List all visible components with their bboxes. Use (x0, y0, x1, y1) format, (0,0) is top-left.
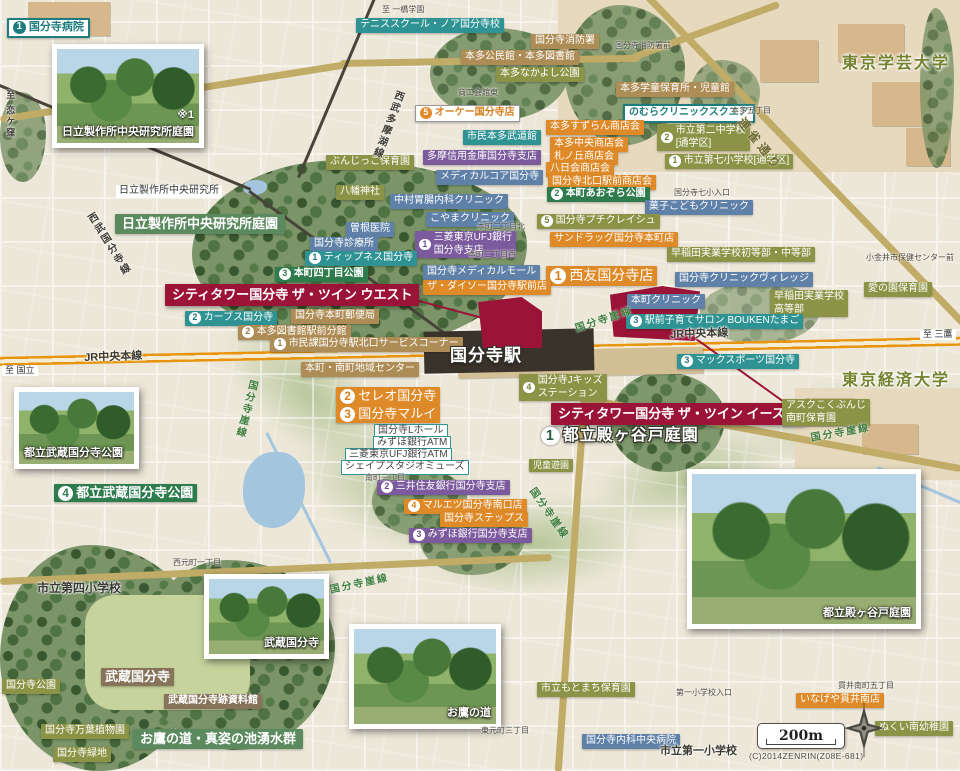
label-text: 武蔵国分寺 (105, 669, 170, 685)
map-label-shop: 本多すずらん商店会 (546, 120, 644, 135)
map-label-wplain: 至 国立 (2, 365, 38, 376)
map-label-plain: 市立第四小学校 (37, 581, 121, 596)
label-text: 国分寺緑地 (57, 748, 107, 761)
label-text: 市立もとまち保育園 (541, 683, 631, 696)
map-label-teal: 2カーブス国分寺 (185, 311, 277, 326)
map-label-note: 至 一橋学園 (382, 5, 424, 15)
map-label-olive: 本多なかよし公園 (496, 67, 584, 82)
label-text: 多摩信用金庫国分寺支店 (427, 151, 537, 164)
label-text: 国分寺ステップス (444, 513, 524, 526)
label-text: 本町・南町地域センター (305, 363, 415, 376)
label-text: 東京経済大学 (842, 371, 950, 391)
map-label-olive: 愛の園保育園 (864, 282, 932, 297)
label-text: 市民課国分寺駅北口サービスコーナー (289, 338, 459, 351)
map-label-clinic: メディカルコア国分寺 (436, 170, 543, 185)
label-text: オーケー国分寺店 (435, 107, 515, 120)
label-text: 武蔵国分寺跡資料館 (168, 695, 258, 708)
map-label-pub: 1市民課国分寺駅北口サービスコーナー (270, 337, 463, 352)
label-text: ティップネス国分寺 (324, 252, 413, 265)
label-text: 本町四丁目公園 (294, 268, 364, 281)
label-text: マックスポーツ国分寺 (696, 355, 796, 368)
photo-caption: 武蔵国分寺 (264, 634, 319, 650)
label-text: 八幡神社 (340, 186, 380, 199)
label-text: みずほ銀行国分寺支店 (428, 529, 528, 542)
label-text: 至 国立 (5, 365, 35, 376)
label-text: 菓子こどもクリニック (649, 201, 749, 214)
label-text: 曽根医院 (350, 223, 390, 236)
campus-building (760, 40, 818, 82)
label-text: 都立武蔵国分寺公園 (76, 485, 193, 501)
label-text: 国分寺公園 (6, 680, 56, 693)
map-label-note: 本町二丁目北 (477, 222, 525, 232)
label-text: 至 恋ケ窪 (4, 90, 15, 139)
map-label-crimson: シティタワー国分寺 ザ・ツイン イースト (551, 403, 805, 425)
map-label-plain: JR中央本線 (670, 327, 729, 343)
label-text: 国分寺メディカルモール (427, 266, 536, 279)
map-label-note: 東元町三丁目 (481, 726, 529, 736)
photo-image (692, 474, 916, 624)
map-label-pub: 国分寺本町郵便局 (291, 309, 379, 324)
map-label-note: 西元町一丁目 (173, 558, 221, 568)
photo-caption: 都立武蔵国分寺公園 (24, 444, 123, 460)
map-label-bank: 多摩信用金庫国分寺支店 (423, 150, 541, 165)
map-label-pub: 本多学童保育所・児童館 (616, 82, 734, 97)
property-block-west (478, 297, 542, 348)
compass-rose (844, 702, 884, 758)
label-text: 本多公民館・本多図書館 (465, 51, 575, 64)
map-label-olive: 八幡神社 (336, 185, 384, 200)
map-label-wplain: 至 三鷹 (920, 329, 956, 340)
map-label-teal: 3マックスポーツ国分寺 (677, 354, 799, 369)
badge-number-icon: 2 (381, 481, 393, 493)
map-label-olive: 早稲田実業学校初等部・中等部 (667, 247, 815, 262)
label-text: 東京学芸大学 (842, 54, 950, 74)
map-label-shop: 1西友国分寺店 (546, 266, 657, 286)
label-text: 国分寺本町郵便局 (295, 310, 375, 323)
photo-card: お鷹の道 (349, 624, 501, 729)
label-text: 八日会商店会 (550, 163, 610, 176)
label-text: 中村胃腸内科クリニック (394, 195, 504, 208)
photo-caption: 日立製作所中央研究所庭園 (62, 123, 194, 139)
badge-number-icon: 1 (669, 155, 681, 167)
badge-number-icon: 2 (189, 312, 201, 324)
photo-card: 都立殿ヶ谷戸庭園 (687, 469, 921, 629)
badge-number-icon: 4 (523, 382, 535, 394)
map-label-univ: 東京学芸大学 (842, 54, 950, 74)
photo-note: ※1 (177, 108, 194, 121)
label-text: アスクこくぶんじ 南町保育園 (786, 400, 866, 425)
photo-card: 都立武蔵国分寺公園 (14, 387, 139, 469)
label-text: メディカルコア国分寺 (440, 171, 539, 184)
map-label-olive: ぬくい南幼稚園 (875, 721, 953, 736)
label-text: 三井住友銀行国分寺支店 (396, 481, 506, 494)
label-text: 本多すずらん商店会 (550, 121, 640, 134)
map-label-green: 3本町四丁目公園 (275, 267, 368, 282)
map-label-clinic: 本町クリニック (627, 294, 705, 309)
label-text: 至 三鷹 (923, 329, 953, 340)
badge-number-icon: 5 (541, 215, 553, 227)
label-text: 本多中央商店会 (554, 138, 624, 151)
map-label-olive: 5国分寺プチクレイシュ (537, 214, 660, 229)
label-text: カーブス国分寺 (204, 312, 273, 325)
badge-number-icon: 2 (340, 389, 355, 404)
label-text: ぶんじっこ保育園 (330, 156, 410, 169)
label-text: テニススクール・ノア国分寺校 (360, 19, 500, 32)
map-label-olive: 国分寺公園 (2, 679, 60, 694)
map-label-green: 4都立武蔵国分寺公園 (54, 484, 197, 502)
map-label-parkbig: 日立製作所中央研究所庭園 (115, 214, 285, 234)
label-text: 小金井市保健センター前 (866, 253, 954, 263)
map-label-note: 本多五丁目 (731, 106, 771, 116)
photo-caption: 都立殿ヶ谷戸庭園 (823, 604, 911, 620)
map-label-univ: 東京経済大学 (842, 371, 950, 391)
label-text: 至 一橋学園 (382, 5, 424, 15)
label-text: 愛の園保育園 (868, 283, 928, 296)
badge-number-icon: 1 (309, 252, 321, 264)
badge-number-icon: 1 (550, 268, 566, 284)
map-label-plain: JR中央本線 (84, 350, 143, 366)
map-label-worange: 5オーケー国分寺店 (415, 105, 520, 122)
badge-number-icon: 3 (279, 268, 291, 280)
map-label-shop: サンドラッグ国分寺本町店 (550, 232, 678, 247)
label-text: 国分寺マルイ (358, 406, 436, 422)
label-text: 国分寺病院 (29, 21, 84, 35)
photo-card: 武蔵国分寺 (204, 574, 329, 659)
label-text: 国分寺診療所 (314, 238, 374, 251)
map-label-parkbig: お鷹の道・真姿の池湧水群 (133, 729, 303, 749)
label-text: シェイプスタジオミューズ (345, 461, 465, 474)
badge-number-icon: 2 (661, 132, 673, 144)
label-text: 本町二丁目北 (477, 222, 525, 232)
label-text: 日立製作所中央研究所 (119, 185, 219, 198)
map-label-clinic: 中村胃腸内科クリニック (390, 194, 508, 209)
map-label-green: 2本町あおぞら公園 (547, 187, 650, 202)
label-text: 本町クリニック (631, 295, 701, 308)
badge-number-icon: 1 (13, 21, 26, 34)
label-text: 国分寺駅 (450, 345, 522, 366)
map-label-outline: 1都立殿ヶ谷戸庭園 (541, 426, 699, 446)
map-label-shop: 3国分寺マルイ (336, 405, 440, 423)
map-label-shop: ザ・ダイソー国分寺駅前店 (423, 280, 551, 295)
label-text: 国分寺プチクレイシュ (556, 215, 656, 228)
map-label-olive: 児童遊園 (529, 459, 573, 472)
map-label-clinic: 国分寺メディカルモール (423, 265, 540, 280)
map-label-shop: 国分寺ステップス (440, 512, 528, 527)
map-label-pub: 本町・南町地域センター (301, 362, 419, 377)
label-text: JR中央本線 (84, 350, 143, 366)
map-label-clinic: 国分寺診療所 (310, 237, 378, 252)
map-label-pub: 本多公民館・本多図書館 (461, 50, 579, 65)
label-text: 国分寺七小入口 (674, 188, 730, 198)
label-text: 児童遊園 (533, 460, 569, 471)
map-label-note: 小金井市保健センター前 (866, 253, 954, 263)
map-label-olive: ぶんじっこ保育園 (326, 155, 414, 170)
map-label-note: 本町二丁目西 (468, 250, 516, 260)
label-text: 早稲田実業学校初等部・中等部 (671, 248, 811, 261)
map-label-olive: 国分寺緑地 (53, 747, 111, 762)
label-text: マルエツ国分寺南口店 (423, 500, 523, 513)
label-text: 国分寺消防署 (535, 35, 595, 48)
label-text: 日立製作所中央研究所庭園 (122, 216, 278, 232)
map-label-olive: 4国分寺Jキッズ ステーション (519, 374, 607, 401)
badge-number-icon: 5 (420, 107, 432, 119)
badge-number-icon: 2 (551, 188, 563, 200)
label-text: 東元町三丁目 (481, 726, 529, 736)
badge-number-icon: 4 (58, 486, 73, 501)
label-text: 西元町一丁目 (173, 558, 221, 568)
label-text: JR中央本線 (670, 327, 729, 343)
badge-number-icon: 1 (274, 338, 286, 350)
badge-number-icon: 1 (419, 239, 431, 251)
label-text: 西友国分寺店 (569, 267, 653, 285)
label-text: シティタワー国分寺 ザ・ツイン ウエスト (172, 287, 412, 303)
map-label-clinic: 曽根医院 (346, 222, 394, 237)
badge-number-icon: 2 (242, 326, 254, 338)
photo-card: ※1日立製作所中央研究所庭園 (52, 44, 204, 148)
map-label-olive: 市立もとまち保育園 (537, 682, 635, 697)
label-text: 市立第四小学校 (37, 581, 121, 596)
label-text: 市立第一小学校 (660, 745, 737, 759)
badge-number-icon: 3 (340, 407, 355, 422)
label-text: 商工会館東 (458, 88, 498, 98)
map-label-note: 貫井南町五丁目 (838, 681, 894, 691)
map-label-clinic: 国分寺クリニックヴィレッジ (675, 272, 813, 287)
badge-number-icon: 3 (413, 529, 425, 541)
map-label-note: 南町三丁目 (365, 473, 405, 483)
scale-label: 200m (779, 728, 823, 744)
map-label-teal: 1ティップネス国分寺 (305, 251, 417, 266)
map-label-crimson: シティタワー国分寺 ザ・ツイン ウエスト (165, 284, 419, 306)
label-text: サンドラッグ国分寺本町店 (554, 233, 674, 246)
badge-number-icon: 3 (681, 355, 693, 367)
badge-number-icon: 4 (408, 500, 420, 512)
map-label-olive: 早稲田実業学校 高等部 (770, 290, 848, 317)
map-label-plain: 市立第一小学校 (660, 745, 737, 759)
map-label-brown: 武蔵国分寺跡資料館 (164, 694, 262, 709)
map-canvas: ※1日立製作所中央研究所庭園都立武蔵国分寺公園武蔵国分寺お鷹の道都立殿ヶ谷戸庭園… (0, 0, 960, 771)
map-label-note: 国分寺消防署前 (615, 41, 671, 51)
label-text: 市立第二中学校 [通学区] (676, 125, 746, 150)
photo-caption: お鷹の道 (447, 704, 491, 720)
map-label-olive: 国分寺万葉植物園 (41, 724, 129, 739)
map-label-bank: 3みずほ銀行国分寺支店 (409, 528, 532, 543)
map-label-brown: 武蔵国分寺 (101, 668, 174, 686)
map-label-teal: テニススクール・ノア国分寺校 (356, 18, 504, 33)
scale-bar: 200m (757, 723, 845, 749)
label-text: 本町二丁目西 (468, 250, 516, 260)
map-label-wplain: 日立製作所中央研究所 (116, 185, 222, 198)
label-text: 早稲田実業学校 高等部 (774, 291, 844, 316)
map-label-teal: 市民本多武道館 (463, 130, 541, 145)
label-text: 本多なかよし公園 (500, 68, 580, 81)
label-text: 本多学童保育所・児童館 (620, 83, 730, 96)
map-label-note: 国分寺七小入口 (674, 188, 730, 198)
map-label-olive: 2市立第二中学校 [通学区] (657, 124, 750, 151)
label-text: 南町三丁目 (365, 473, 405, 483)
map-label-clinic: 菓子こどもクリニック (645, 200, 753, 215)
label-text: 本多五丁目 (731, 106, 771, 116)
label-text: 駅前子育てサロン BOUKENたまご (645, 315, 800, 328)
label-text: 第一小学校入口 (676, 688, 732, 698)
label-text: セレオ国分寺 (358, 388, 436, 404)
label-text: 貫井南町五丁目 (838, 681, 894, 691)
map-label-railname: 至 恋ケ窪 (4, 90, 15, 139)
label-text: ザ・ダイソー国分寺駅前店 (427, 281, 547, 294)
map-label-shop: 2セレオ国分寺 (336, 387, 440, 405)
label-text: お鷹の道・真姿の池湧水群 (140, 731, 296, 747)
label-text: ぬくい南幼稚園 (879, 722, 949, 735)
map-label-olive: アスクこくぶんじ 南町保育園 (782, 399, 870, 426)
label-text: 国分寺万葉植物園 (45, 725, 125, 738)
label-text: 都立殿ヶ谷戸庭園 (563, 426, 699, 446)
map-label-outline: 国分寺駅 (450, 345, 522, 366)
label-text: 市民本多武道館 (467, 131, 537, 144)
label-text: シティタワー国分寺 ザ・ツイン イースト (558, 406, 798, 422)
map-label-note: 商工会館東 (458, 88, 498, 98)
map-label-teal: 3駅前子育てサロン BOUKENたまご (626, 314, 803, 329)
label-text: 本町あおぞら公園 (566, 188, 646, 201)
map-label-wteal: 1国分寺病院 (7, 18, 90, 38)
map-label-note: 第一小学校入口 (676, 688, 732, 698)
label-text: 国分寺消防署前 (615, 41, 671, 51)
label-text: 国分寺クリニックヴィレッジ (679, 273, 809, 286)
map-label-pub: 国分寺消防署 (531, 34, 599, 49)
label-text: 国分寺Jキッズ ステーション (538, 375, 603, 400)
badge-number-icon: 1 (541, 427, 560, 446)
